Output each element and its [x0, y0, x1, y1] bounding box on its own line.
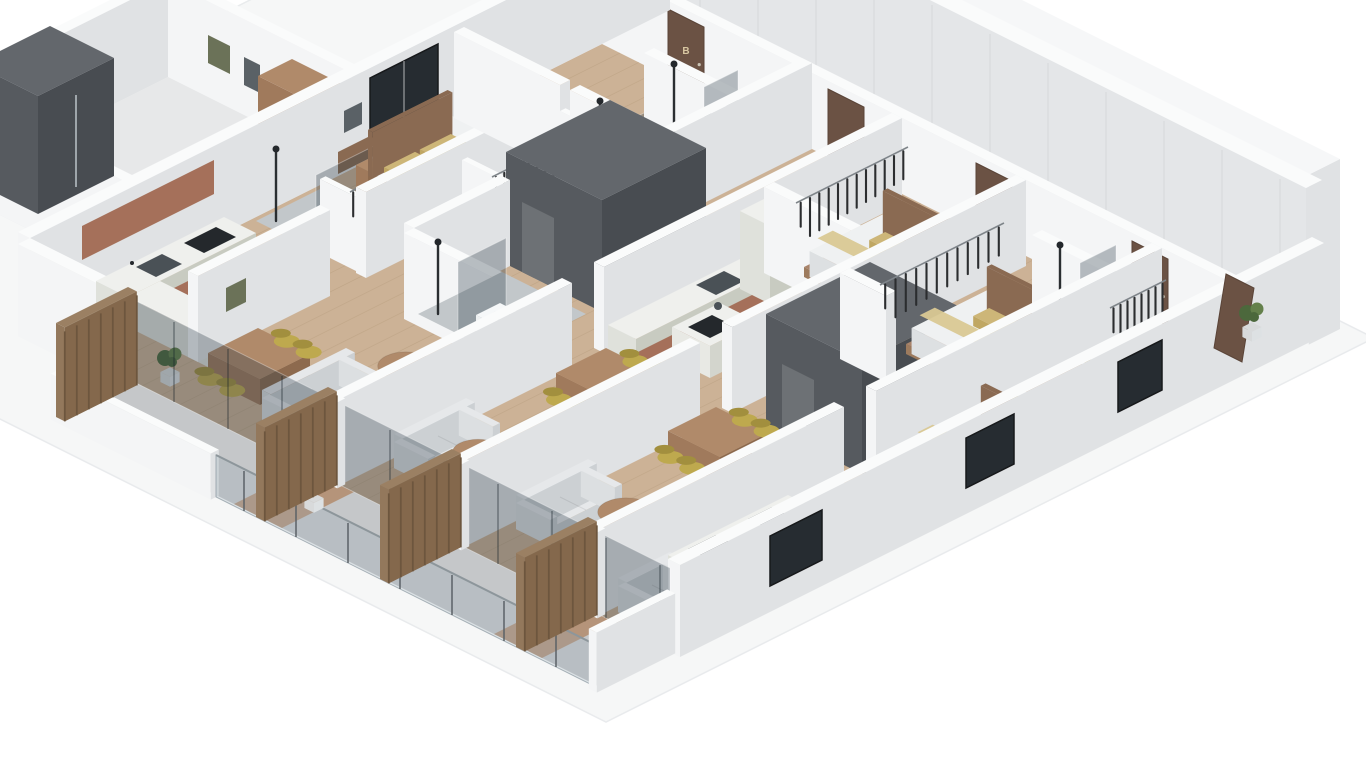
- entry-door-b-letter: B: [682, 46, 689, 57]
- isometric-floor-plan-render: BD: [0, 0, 1366, 768]
